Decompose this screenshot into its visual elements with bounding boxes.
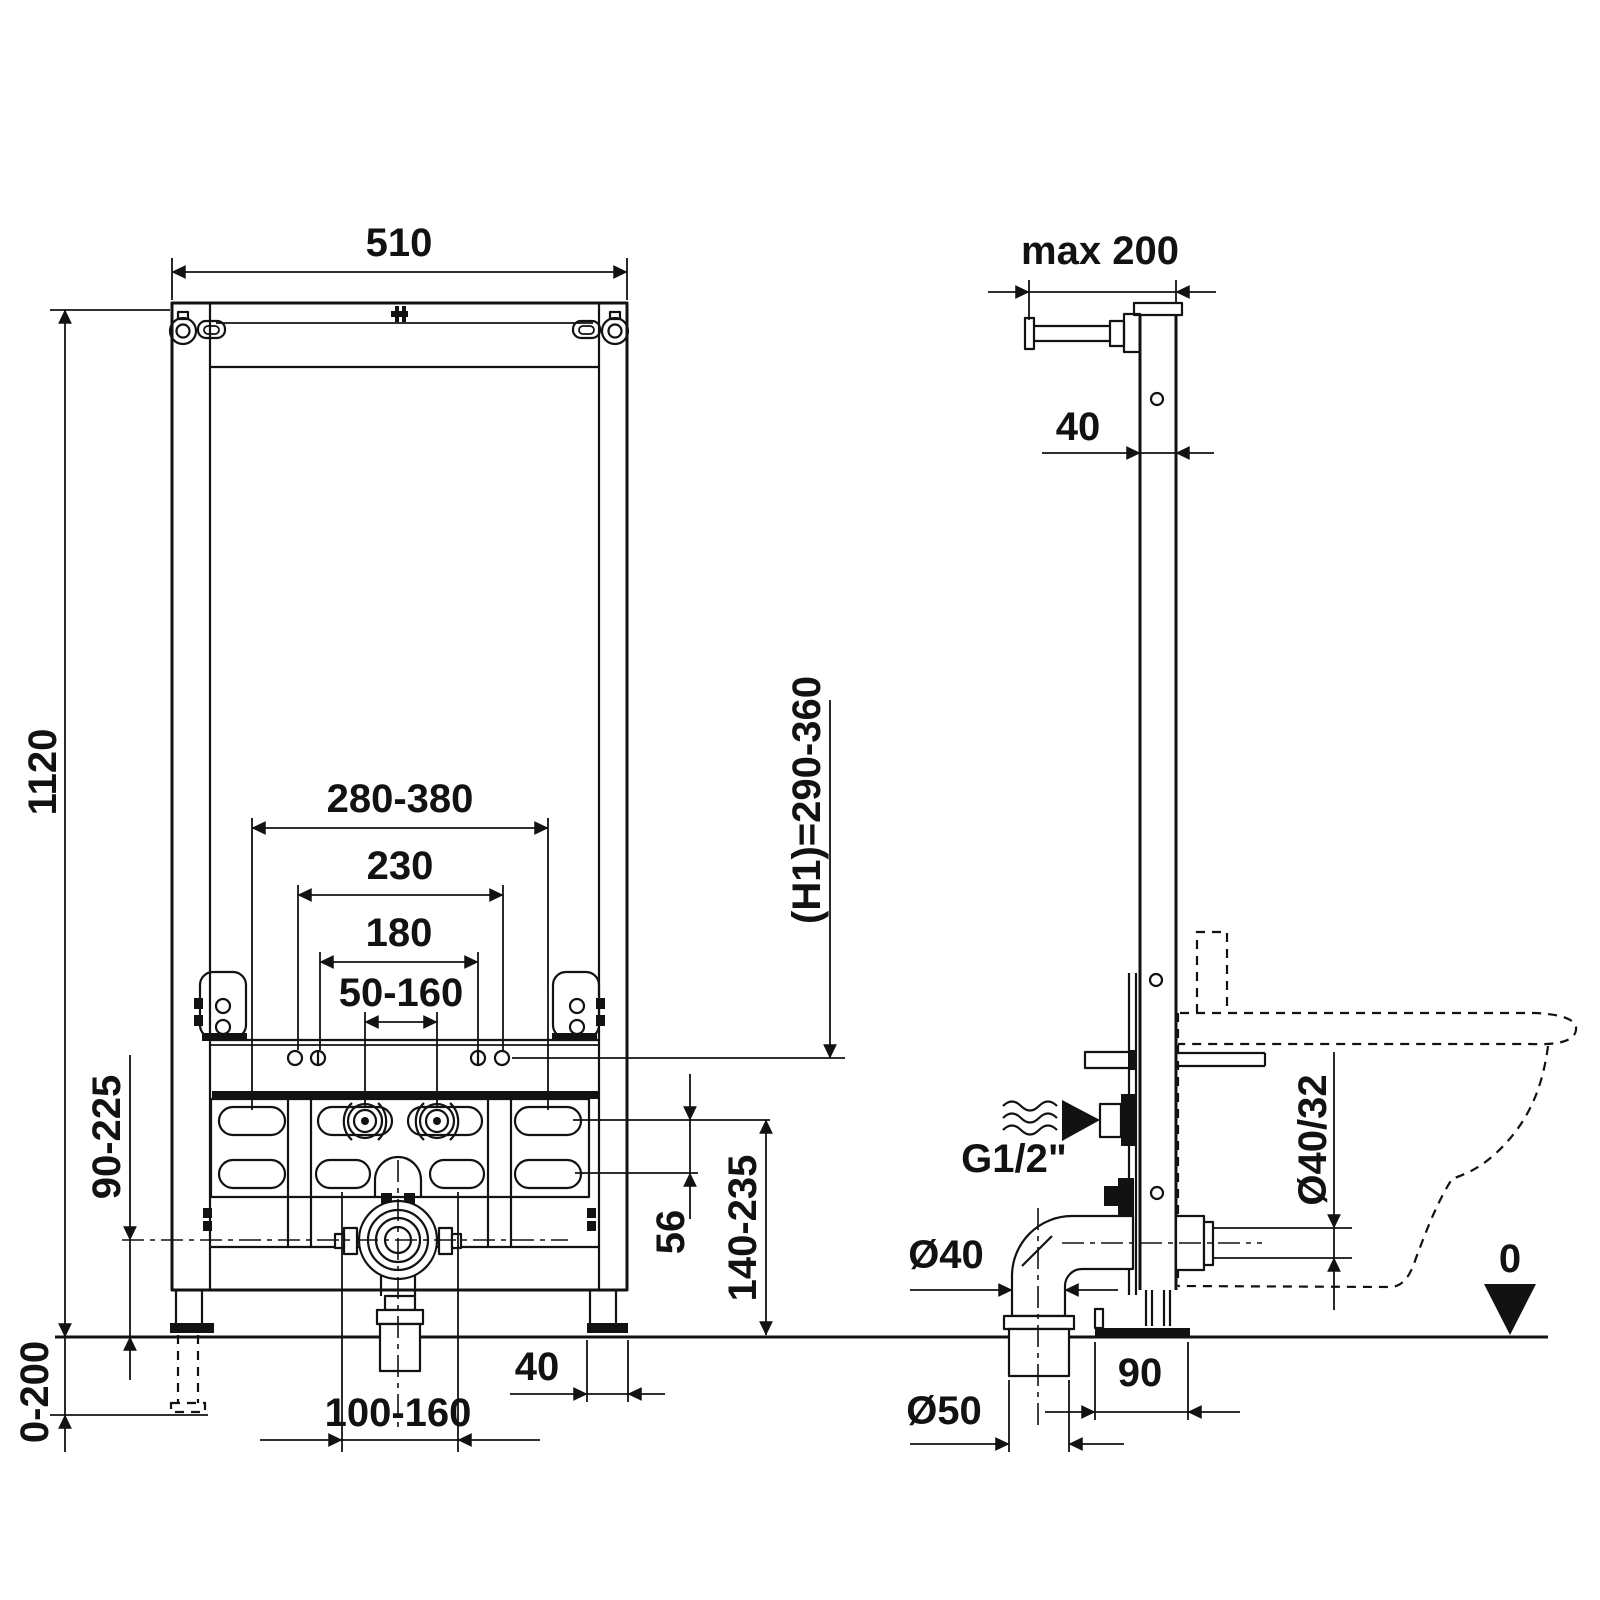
supply-socket xyxy=(1100,1104,1121,1137)
dim-frame-width-label: 510 xyxy=(366,221,433,265)
flow-arrow-icon xyxy=(1062,1100,1100,1141)
dim-elbow-diameter-label: Ø40 xyxy=(908,1233,984,1277)
water-flow-icon xyxy=(1003,1102,1057,1135)
technical-drawing: 510 1120 0-200 90-225 280-380 xyxy=(0,0,1600,1600)
dim-profile-depth: 40 xyxy=(1042,405,1214,453)
dim-drain-offset-range-label: 100-160 xyxy=(325,1391,472,1435)
top-crossmember xyxy=(170,306,628,344)
dim-slot-row-gap: 56 xyxy=(649,1074,693,1254)
dim-plate-height-range-label: 140-235 xyxy=(721,1155,765,1302)
wall-anchor-rod xyxy=(1025,314,1140,352)
dim-slot-row-gap-label: 56 xyxy=(649,1210,693,1255)
dim-wall-distance-label: max 200 xyxy=(1021,229,1179,273)
dim-profile-depth-label: 40 xyxy=(1056,405,1101,449)
dim-frame-width: 510 xyxy=(172,221,627,300)
dim-outlet-diameter-label: Ø40/32 xyxy=(1291,1074,1335,1205)
center-clip-icon xyxy=(391,306,408,322)
dim-plate-height-range: 140-235 xyxy=(721,1120,766,1335)
dim-mount-bolt-spacing-label: 280-380 xyxy=(327,777,474,821)
drain-elbow xyxy=(1004,1216,1133,1376)
floor-datum: 0 xyxy=(1484,1237,1536,1335)
dim-supply-spacing: 50-160 xyxy=(339,971,464,1106)
dim-hole-spacing-inner-label: 180 xyxy=(366,911,433,955)
side-profile xyxy=(1134,303,1182,1290)
drawing-page: 510 1120 0-200 90-225 280-380 xyxy=(0,0,1600,1600)
corner-screw-right-icon xyxy=(602,312,628,344)
fixing-hole-barred-right xyxy=(471,1051,485,1065)
dim-drain-pipe-diameter: Ø50 xyxy=(906,1380,1124,1452)
corner-screw-left-icon xyxy=(170,312,196,344)
crossbar-band xyxy=(210,1040,599,1099)
telescopic-foot-extension xyxy=(171,1403,205,1412)
wall-bracket-left xyxy=(194,972,247,1041)
side-view: G1/2" xyxy=(961,303,1576,1428)
dim-foot-plate-width: 40 xyxy=(510,1340,665,1402)
dim-drain-pipe-diameter-label: Ø50 xyxy=(906,1389,982,1433)
water-supply-connection: G1/2" xyxy=(961,1094,1135,1181)
dim-drain-wall-offset: 90 xyxy=(1045,1342,1240,1420)
dim-floor-datum-label: 0 xyxy=(1499,1237,1521,1281)
wall-bracket-right xyxy=(552,972,605,1041)
dim-drain-center-height-label: 90-225 xyxy=(85,1075,129,1200)
drain-spigot xyxy=(1176,1216,1352,1270)
front-centerlines xyxy=(122,1160,568,1430)
datum-triangle-icon xyxy=(1484,1284,1536,1335)
fixing-hole-barred-left xyxy=(311,1051,325,1065)
dim-drain-center-height: 90-225 xyxy=(85,1055,130,1380)
dim-h1-height: (H1)=290-360 xyxy=(785,676,830,1058)
dim-hole-spacing-outer-label: 230 xyxy=(367,844,434,888)
dim-outlet-diameter: Ø40/32 xyxy=(1291,1052,1335,1310)
dim-water-supply-label: G1/2" xyxy=(961,1137,1067,1181)
dim-frame-height-label: 1120 xyxy=(21,729,65,816)
dim-foot-plate-width-label: 40 xyxy=(515,1345,560,1389)
dim-leg-extension-label: 0-200 xyxy=(13,1341,57,1443)
dim-h1-height-label: (H1)=290-360 xyxy=(785,676,829,924)
dim-drain-wall-offset-label: 90 xyxy=(1118,1351,1163,1395)
bidet-outline xyxy=(1178,932,1576,1287)
dim-supply-spacing-label: 50-160 xyxy=(339,971,464,1015)
side-foot xyxy=(1095,1290,1190,1337)
